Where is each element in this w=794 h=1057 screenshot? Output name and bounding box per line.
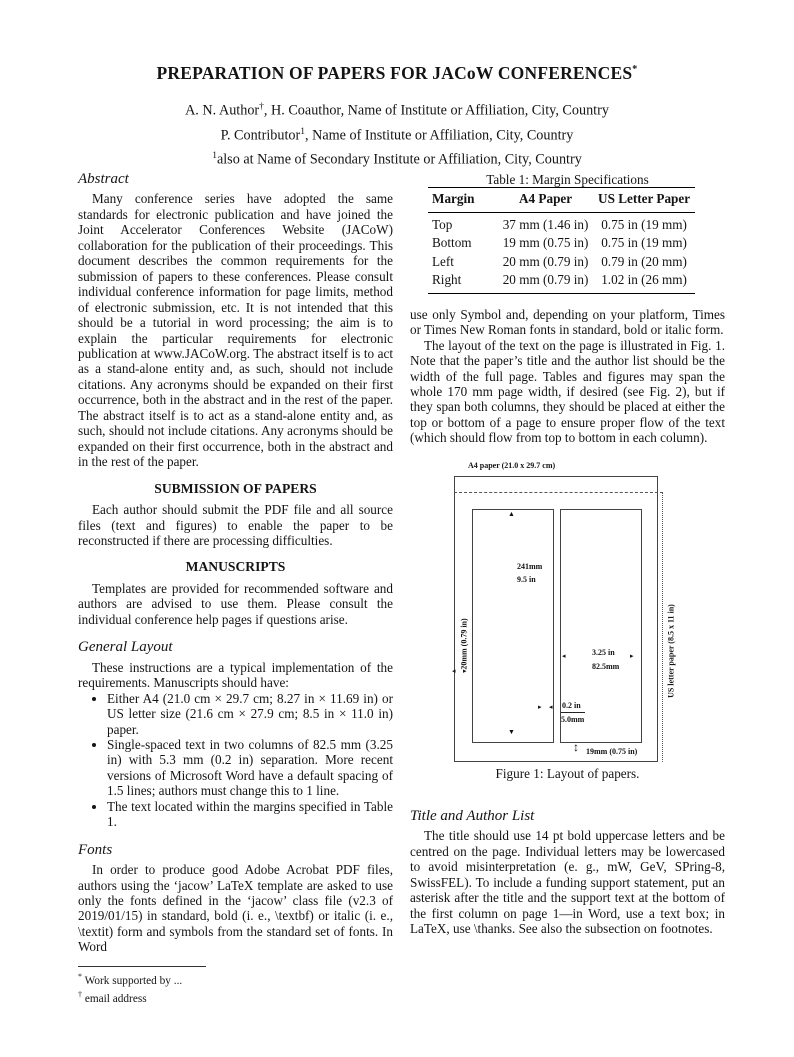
footnote-email: † email address (78, 988, 393, 1006)
table-cell: 1.02 in (26 mm) (593, 271, 695, 293)
figure-caption: Figure 1: Layout of papers. (410, 766, 725, 781)
footnote-block: * Work supported by ... † email address (78, 966, 393, 1007)
abstract-heading: Abstract (78, 172, 393, 187)
right-column: Table 1: Margin Specifications Margin A4… (410, 172, 725, 936)
table-cell: 20 mm (0.79 in) (498, 252, 593, 270)
table-cell: 19 mm (0.75 in) (498, 234, 593, 252)
paper-title: PREPARATION OF PAPERS FOR JACoW CONFEREN… (0, 63, 794, 84)
table-cell: 0.75 in (19 mm) (593, 234, 695, 252)
column-gap-label: 5.0mm (561, 715, 584, 725)
paper-title-text: PREPARATION OF PAPERS FOR JACoW CONFEREN… (157, 63, 633, 83)
title-footnote-mark: * (632, 64, 637, 75)
us-letter-top-edge-line (454, 492, 663, 493)
a4-paper-label: A4 paper (21.0 x 29.7 cm) (468, 461, 555, 471)
gap-label-rule (561, 712, 585, 713)
bottom-margin-label: 19mm (0.75 in) (586, 747, 637, 757)
column-width-label: 82.5mm (592, 662, 619, 672)
author-block: A. N. Author†, H. Coauthor, Name of Inst… (0, 97, 794, 171)
list-item: The text located within the margins spec… (107, 799, 393, 830)
column-height-label: 9.5 in (517, 575, 536, 585)
down-arrow-icon: ▼ (508, 729, 515, 736)
left-arrow-icon: ◂ (452, 668, 456, 675)
author-line: P. Contributor1, Name of Institute or Af… (0, 122, 794, 147)
table-row: Top 37 mm (1.46 in) 0.75 in (19 mm) (428, 212, 695, 233)
table-cell: 20 mm (0.79 in) (498, 271, 593, 293)
abstract-text: Many conference series have adopted the … (78, 191, 393, 469)
left-arrow-icon: ◂ (562, 653, 566, 660)
layout-text: The layout of the text on the page is il… (410, 338, 725, 446)
footnote-rule (78, 966, 206, 967)
table-cell: Right (428, 271, 498, 293)
table-cell: 0.79 in (20 mm) (593, 252, 695, 270)
column-gap-label: 0.2 in (562, 701, 581, 711)
margin-table: Margin A4 Paper US Letter Paper Top 37 m… (428, 187, 695, 293)
up-arrow-icon: ▲ (508, 511, 515, 518)
table-header-cell: US Letter Paper (593, 188, 695, 212)
column-width-label: 3.25 in (592, 648, 615, 658)
title-author-list-heading: Title and Author List (410, 809, 725, 824)
table-cell: Bottom (428, 234, 498, 252)
right-arrow-icon: ▸ (463, 668, 467, 675)
paper-page: PREPARATION OF PAPERS FOR JACoW CONFEREN… (0, 0, 794, 1057)
column-height-label: 241mm (517, 562, 542, 572)
vertical-arrow-icon: ↕ (573, 744, 579, 751)
author-line: A. N. Author†, H. Coauthor, Name of Inst… (0, 97, 794, 122)
left-arrow-icon: ◂ (549, 704, 553, 711)
left-column: Abstract Many conference series have ado… (78, 172, 393, 1006)
title-author-list-text: The title should use 14 pt bold uppercas… (410, 828, 725, 936)
requirements-list: Either A4 (21.0 cm × 29.7 cm; 8.27 in × … (78, 691, 393, 830)
left-margin-label: 20mm (0.79 in) (456, 618, 471, 669)
right-arrow-icon: ▸ (538, 704, 542, 711)
figure1-layout-diagram: A4 paper (21.0 x 29.7 cm) ▲ ▼ 241mm 9.5 … (410, 461, 725, 793)
footnote-funding: * Work supported by ... (78, 970, 393, 988)
table-cell: Left (428, 252, 498, 270)
table-cell: 37 mm (1.46 in) (498, 212, 593, 233)
submission-text: Each author should submit the PDF file a… (78, 502, 393, 548)
table-cell: Top (428, 212, 498, 233)
general-layout-text: These instructions are a typical impleme… (78, 660, 393, 691)
list-item: Either A4 (21.0 cm × 29.7 cm; 8.27 in × … (107, 691, 393, 737)
table-row: Left 20 mm (0.79 in) 0.79 in (20 mm) (428, 252, 695, 270)
table-row: Right 20 mm (0.79 in) 1.02 in (26 mm) (428, 271, 695, 293)
table-caption: Table 1: Margin Specifications (410, 172, 725, 187)
submission-heading: SUBMISSION OF PAPERS (78, 481, 393, 496)
fonts-text: In order to produce good Adobe Acrobat P… (78, 862, 393, 955)
table-row: Bottom 19 mm (0.75 in) 0.75 in (19 mm) (428, 234, 695, 252)
manuscripts-heading: MANUSCRIPTS (78, 559, 393, 574)
table-cell: 0.75 in (19 mm) (593, 212, 695, 233)
table-header-cell: A4 Paper (498, 188, 593, 212)
fonts-heading: Fonts (78, 843, 393, 858)
table-header-cell: Margin (428, 188, 498, 212)
right-arrow-icon: ▸ (630, 653, 634, 660)
us-letter-paper-label: US letter paper (8.5 x 11 in) (663, 604, 678, 698)
fonts-continuation-text: use only Symbol and, depending on your p… (410, 307, 725, 338)
manuscripts-text: Templates are provided for recommended s… (78, 581, 393, 627)
general-layout-heading: General Layout (78, 640, 393, 655)
list-item: Single-spaced text in two columns of 82.… (107, 737, 393, 799)
author-affiliation-note: 1also at Name of Secondary Institute or … (0, 146, 794, 171)
table-header-row: Margin A4 Paper US Letter Paper (428, 188, 695, 212)
